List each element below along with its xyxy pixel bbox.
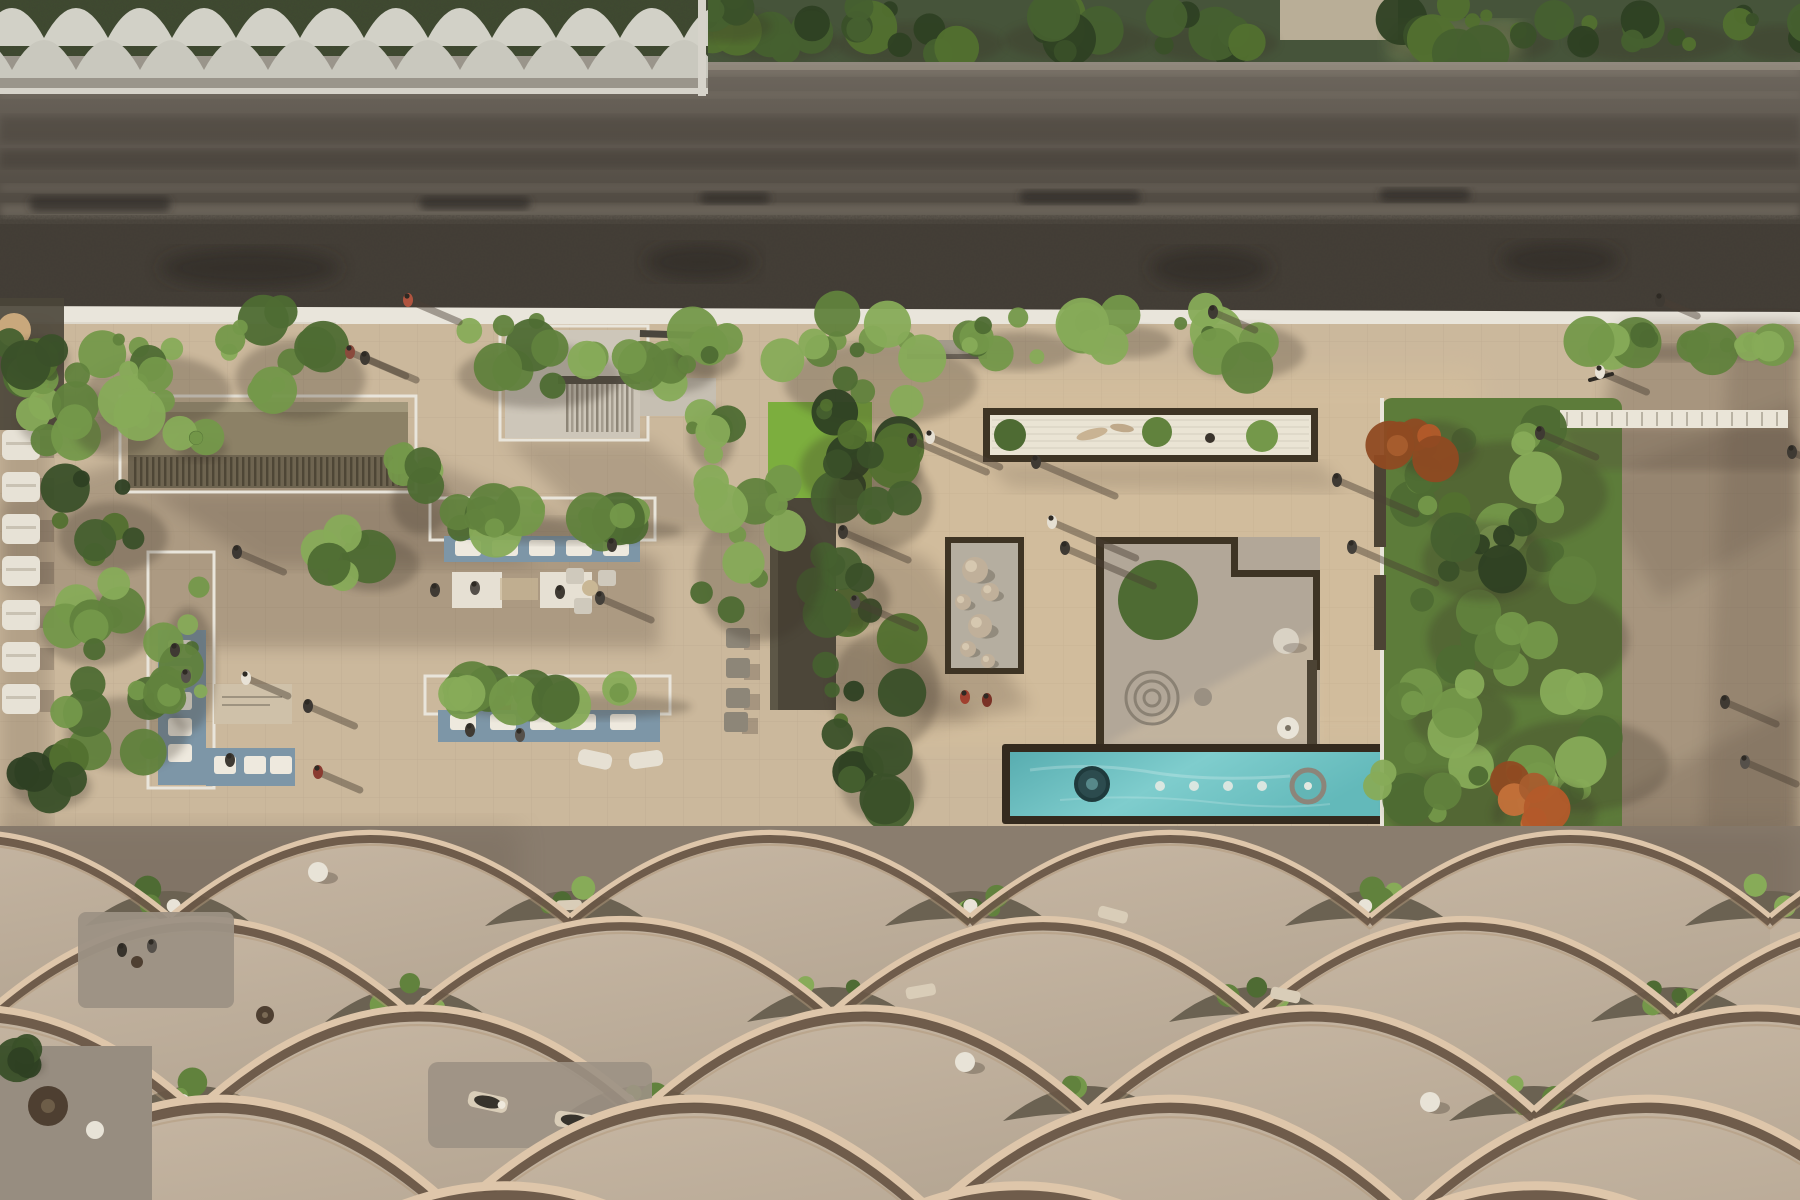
road-patch [700,192,770,204]
opposite-vault-building [0,0,780,96]
tree-canopy [823,449,852,478]
louver-slat [380,457,382,486]
louver-slat [242,457,244,486]
tree-canopy [838,766,865,793]
tree-canopy [962,337,978,353]
tree-canopy [74,519,116,561]
tree-canopy [1468,766,1488,786]
dark-bench [1374,575,1386,650]
round-table-white [86,1121,104,1139]
boulder-highlight [965,560,977,572]
tree-canopy [1746,13,1759,26]
person-head [1721,695,1726,700]
louver-slat [302,457,304,486]
person-head [608,538,613,543]
tree-canopy [194,684,208,698]
boulder-highlight [971,617,982,628]
louver-slat [308,457,310,486]
boulder-highlight [962,643,969,650]
spa-center [1086,778,1098,790]
tree-canopy [294,327,336,369]
tree-canopy [1495,612,1528,645]
tree-canopy [83,638,105,660]
lounger-fold [6,526,36,529]
person-head [242,671,247,676]
road-streak [0,150,1800,168]
tree-canopy [1682,37,1696,51]
bench-slat [1731,412,1733,426]
tree-canopy [531,329,568,366]
tree-canopy [833,366,858,391]
person-head [839,525,844,530]
tree-canopy [1555,736,1607,788]
tree-canopy [1221,342,1273,394]
zen-courtyard [1096,537,1320,748]
tree-canopy [610,503,635,528]
tree-canopy [678,355,696,373]
tree-canopy [890,385,924,419]
lounger-fold [6,696,36,699]
boulder-highlight [983,656,989,662]
person-head [1061,541,1066,546]
road-streak [0,184,1800,192]
person-head [431,583,436,588]
tree-canopy [35,334,68,367]
bench-slat [1596,412,1598,426]
louver-slat [134,457,136,486]
person-head [1596,365,1601,370]
bench-slat [1656,412,1658,426]
table-center [41,1099,55,1113]
road-patch [1020,190,1140,204]
tree-canopy [1754,331,1785,362]
tree-canopy [215,324,245,354]
person-head [404,293,409,298]
tree-canopy [1480,9,1492,21]
person-head [182,669,187,674]
person-head [1209,305,1214,310]
tree-canopy [250,366,297,413]
tree-canopy [690,581,713,604]
tree-canopy [850,343,865,358]
zen-shrub [994,419,1026,451]
louver-slat [314,457,316,486]
person-head [148,939,153,944]
lounger-fold [6,484,36,487]
louver-slat [164,457,166,486]
bench-slat [1776,412,1778,426]
tree-canopy [701,346,719,364]
louver-slat [368,457,370,486]
seat-cushion [270,756,292,774]
tree-canopy [1686,323,1738,375]
chairs-tan [500,578,538,600]
person-head [466,723,471,728]
louver-slat [248,457,250,486]
tree-canopy [566,492,618,544]
bench-shadow [1560,428,1800,470]
tree-canopy [859,773,910,824]
tree-canopy [1640,329,1659,348]
tree-canopy [568,341,607,380]
lounger-shadow [40,520,54,542]
louver-slat [326,457,328,486]
person-head [346,345,351,350]
tree-canopy [898,334,946,382]
tree-canopy [857,487,894,524]
zen-shrub [1142,417,1172,447]
tree-canopy [489,676,539,726]
pool-table-center [1285,725,1291,731]
tree-canopy [770,34,800,64]
tree-canopy [824,682,839,697]
bench-slat [1581,412,1583,426]
person-head [361,351,366,356]
louver-slat [260,457,262,486]
louver-slat [290,457,292,486]
gap-plant [1744,874,1767,897]
chair-light [598,570,616,586]
tree-canopy [1228,24,1265,61]
road-patch [1380,188,1470,202]
tree-canopy [612,339,647,374]
vault-courtyard [78,912,234,1008]
top-strip [0,0,1800,312]
tree-canopy [864,301,911,348]
tree-canopy [188,576,209,597]
tree-canopy [120,729,167,776]
tree-canopy [307,543,350,586]
louver-slat [236,457,238,486]
louver-slat [356,457,358,486]
boulder-highlight [983,585,991,593]
louver-slat [224,457,226,486]
tree-canopy [14,752,54,792]
gap-plant [400,973,420,993]
tree-canopy [609,683,628,702]
vault-roof-field [0,826,1800,1200]
tree-canopy [888,33,912,57]
tree-canopy [812,652,838,678]
tree-canopy [1412,436,1459,483]
border [1313,570,1320,670]
spa-center [1304,782,1312,790]
louver-slat [140,457,142,486]
tree-canopy [1493,525,1515,547]
tree-canopy [1534,0,1574,40]
tree-canopy [760,338,804,382]
louver-slat [332,457,334,486]
person-head [471,581,476,586]
pool-jet [1223,781,1233,791]
small-table [131,956,143,968]
person-head [1788,445,1793,450]
tree-canopy [464,509,485,530]
sign-text-line [222,696,282,698]
person-head [1656,293,1661,298]
louver-slat [272,457,274,486]
person-head [983,693,988,698]
person-head [171,643,176,648]
stair-tread [621,380,624,432]
lounger-fold [6,612,36,615]
tree-canopy [974,316,992,334]
tree-canopy [1621,30,1644,53]
tree-canopy [1509,451,1562,504]
tree-canopy [73,470,90,487]
tree-canopy [57,404,92,439]
person-head [233,545,238,550]
dark-bench [1307,660,1317,748]
tree-canopy [1566,673,1603,710]
road-patch [420,196,530,210]
aerial-render-canvas: Photorealistic aerial rendering of a sun… [0,0,1800,1200]
tree-canopy [190,431,203,444]
louver-slat [176,457,178,486]
tree-canopy [846,17,871,42]
tree-canopy [718,596,745,623]
tree-canopy [1511,431,1535,455]
gap-plant [1247,977,1268,998]
louver-slat [338,457,340,486]
louver-slat [254,457,256,486]
tree-canopy [878,668,926,716]
tree-canopy [532,675,580,723]
louver-slat [152,457,154,486]
stair-tread [616,380,619,432]
bench-slat [1686,412,1688,426]
person-head [926,430,931,435]
road-streak [0,116,1800,142]
tree-canopy [1363,772,1392,801]
person-head [908,433,913,438]
person-head [1048,515,1053,520]
person-head [596,591,601,596]
tree-canopy [1449,517,1467,535]
tree-canopy [814,291,860,337]
person-head [1741,755,1746,760]
person-head [961,690,966,695]
bench-slat [1746,412,1748,426]
person-head [1536,426,1541,431]
tree-canopy [822,718,853,749]
tree-canopy [794,6,830,42]
tree-canopy [695,415,730,450]
tree-canopy [1506,765,1522,781]
round-table-white [1420,1092,1440,1112]
tree-canopy [1410,588,1434,612]
tree-shadow [160,248,340,288]
louver-slat [296,457,298,486]
louver-slat [158,457,160,486]
tree-canopy [485,518,504,537]
person-head [226,753,231,758]
louver-slat [374,457,376,486]
louver-slat [182,457,184,486]
tree-canopy [52,512,69,529]
louver-slat [218,457,220,486]
louver-slat [188,457,190,486]
tree-canopy [1387,435,1408,456]
tree-canopy [540,373,566,399]
louver-slat [146,457,148,486]
pavilion-chair [726,658,750,678]
louver-slat [320,457,322,486]
tree-canopy [1404,742,1426,764]
tree-canopy [798,329,829,360]
tree-shadow [1150,248,1270,288]
tree-canopy [820,399,833,412]
slat-bench [1560,410,1788,428]
zen-garden-strip [983,408,1318,462]
tree-canopy [1524,785,1571,832]
person-head [118,943,123,948]
lounger-fold [6,568,36,571]
stone [1194,688,1212,706]
tree-canopy [1054,40,1077,63]
tree-canopy [177,614,198,635]
tree-canopy [405,447,442,484]
tree-canopy [238,295,289,346]
table-center [262,1012,268,1018]
tree-canopy [1174,317,1187,330]
bench-slat [1716,412,1718,426]
person-head [516,728,521,733]
tree-canopy [438,677,472,711]
tree-canopy [113,334,125,346]
person-head [1348,540,1353,545]
sign-text-line [222,704,270,706]
louver-slat [194,457,196,486]
louver-slat [284,457,286,486]
bench-slat [1626,412,1628,426]
tree-canopy [1008,307,1028,327]
tree-canopy [1079,330,1104,355]
round-table-white [308,862,328,882]
pavilion-chair [726,688,750,708]
side-table [582,580,598,596]
tree-shadow [645,244,755,280]
tree-canopy [52,762,87,797]
tree-canopy [863,727,913,777]
stair-tread [626,380,629,432]
louver-slat [362,457,364,486]
slat-bench-right [1560,410,1800,470]
pool-jet [1155,781,1165,791]
bench-slat [1761,412,1763,426]
round-bush-base [1118,560,1198,640]
border [1096,537,1104,745]
tree-canopy [845,563,874,592]
louver-slat [278,457,280,486]
bench-slat [1701,412,1703,426]
pool-jet [1257,781,1267,791]
rooftop-terrace-rendering [0,0,1800,1200]
person-head [851,595,856,600]
person-head [556,585,561,590]
chair-light [574,598,592,614]
border [1096,537,1238,544]
tree-canopy [1029,349,1044,364]
person-head [314,765,319,770]
tree-canopy [1438,560,1460,582]
tree-canopy [113,389,165,441]
stone-bowl [1205,433,1215,443]
person-head [1333,473,1338,478]
bench-slat [1611,412,1613,426]
pavilion-chair [724,712,748,732]
tree-canopy [1418,496,1437,515]
louver-slat [230,457,232,486]
tree-canopy [159,644,204,689]
sphere-shadow [1283,643,1307,653]
tree-canopy [1155,35,1174,54]
boulder-garden [945,537,1024,674]
bench-slat [1671,412,1673,426]
louver-slat [212,457,214,486]
louver-slat [350,457,352,486]
tree-canopy [1424,772,1462,810]
louver-slat [266,457,268,486]
round-table-white [955,1052,975,1072]
louver-slat [170,457,172,486]
louver-slat [344,457,346,486]
tree-canopy [474,343,522,391]
tree-canopy [1549,556,1597,604]
road-streak [0,204,1800,218]
tree-canopy [50,696,82,728]
tree-canopy [97,567,130,600]
tree-canopy [115,479,131,495]
tree-canopy [722,541,764,583]
person-head [1032,455,1037,460]
tree-canopy [1401,691,1425,715]
seat-cushion [244,756,266,774]
tree-shadow [1500,242,1620,278]
tree-canopy [1455,669,1484,698]
tree-canopy [1567,26,1599,58]
chair-light [566,568,584,584]
tree-canopy [843,681,864,702]
lounger-shadow [40,562,54,584]
pool-jet [1189,781,1199,791]
boulder-highlight [957,596,964,603]
tree-canopy [493,315,514,336]
border [1231,570,1320,577]
zen-shrub [1246,420,1278,452]
tree-canopy [765,493,788,516]
tree-canopy [694,477,728,511]
tree-canopy [1564,316,1615,367]
lounger-fold [6,654,36,657]
road-patch [30,196,170,212]
tree-canopy [122,527,144,549]
tree-canopy [1510,22,1537,49]
bench-slat [1641,412,1643,426]
tree-canopy [837,420,867,450]
person-head [304,699,309,704]
tree-canopy [7,1047,34,1074]
